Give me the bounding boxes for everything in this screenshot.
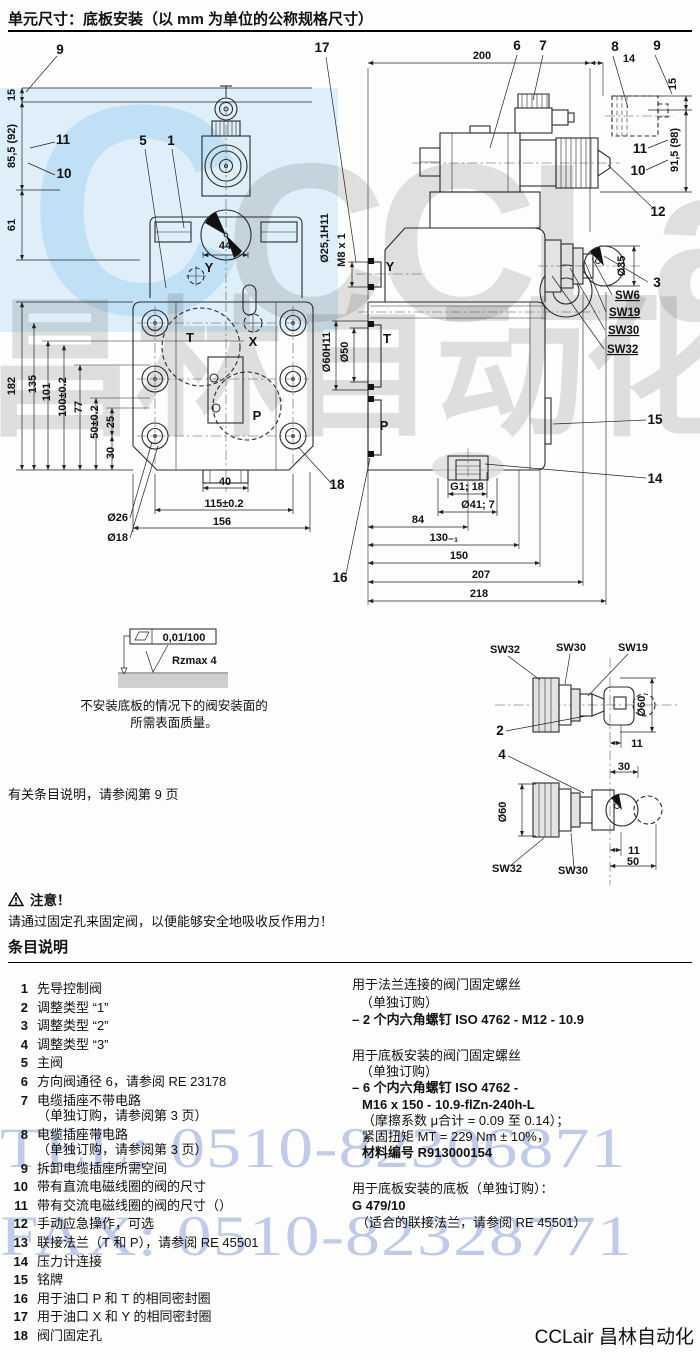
legend-item-number: 2	[8, 1000, 28, 1015]
legend-item-number: 7	[8, 1093, 28, 1124]
dim-label: 25	[105, 416, 117, 428]
dim-label: 44	[219, 240, 232, 252]
port-label: T	[186, 330, 194, 345]
legend-reference-note: 有关条目说明，请参阅第 9 页	[8, 784, 178, 803]
legend-item-number: 14	[8, 1254, 28, 1269]
legend-item: 10带有直流电磁线圈的阀的尺寸	[8, 1179, 348, 1194]
dim-label: 115±0.2	[204, 498, 243, 510]
note-label: 不安装底板的情况下的阀安装面的	[80, 698, 268, 713]
detail-views-geometry	[495, 658, 678, 885]
order-note-line: – 2 个内六角螺钉 ISO 4762 - M12 - 10.9	[352, 1011, 697, 1029]
dim-label: Ø60H11	[321, 332, 333, 372]
dim-label: 14	[623, 53, 636, 65]
dim-label: 61	[6, 219, 18, 231]
warning-row: 注意！	[8, 889, 71, 909]
dim-label: SW30	[556, 642, 586, 654]
dim-label: 15	[667, 78, 679, 90]
legend-item-text: 铭牌	[37, 1272, 63, 1287]
legend-item-text: 调整类型 “2”	[37, 1018, 109, 1033]
dim-label: 50	[627, 856, 639, 868]
legend-item: 16用于油口 P 和 T 的相同密封圈	[8, 1291, 348, 1306]
detail-views-dimensions	[506, 654, 656, 870]
order-note-line: （单独订购）	[352, 994, 697, 1012]
legend-item-text: 调整类型 “3”	[37, 1037, 109, 1052]
legend-item-number: 15	[8, 1272, 28, 1287]
warning-title: 注意！	[30, 889, 71, 909]
callout-label: 10	[56, 166, 71, 181]
legend-item-text: 先导控制阀	[37, 981, 102, 996]
legend-item-text: 电缆插座不带电路（单独订购，请参阅第 3 页）	[37, 1093, 207, 1124]
dim-label: 130₋₁	[430, 532, 459, 544]
callout-label: 9	[56, 42, 64, 57]
flange-screws-block: 用于法兰连接的阀门固定螺丝（单独订购）– 2 个内六角螺钉 ISO 4762 -…	[352, 976, 697, 1029]
legend-item-number: 16	[8, 1291, 28, 1306]
callout-label: 16	[332, 570, 348, 585]
brand-logo-text: CCLair 昌林自动化	[535, 1322, 694, 1349]
dim-label: Ø60	[497, 802, 509, 823]
callout-label: 15	[647, 412, 663, 427]
order-note-line: M16 x 150 - 10.9-flZn-240h-L	[352, 1097, 697, 1113]
order-note-line: – 6 个内六角螺钉 ISO 4762 -	[352, 1080, 697, 1096]
legend-item-text: 压力计连接	[37, 1254, 102, 1269]
dim-label: Ø26	[107, 512, 128, 524]
callout-label: 11	[56, 132, 71, 147]
legend-item-subtext: （单独订购，请参阅第 3 页）	[37, 1142, 207, 1157]
dim-label: 40	[219, 476, 231, 488]
legend-item: 2调整类型 “1”	[8, 1000, 348, 1015]
dim-label: G1; 18	[450, 481, 484, 493]
port-label: Y	[205, 260, 214, 275]
legend-item-text: 带有交流电磁线圈的阀的尺寸（）	[37, 1198, 232, 1213]
order-note-line: 用于法兰连接的阀门固定螺丝	[352, 976, 697, 994]
legend-item: 3调整类型 “2”	[8, 1018, 348, 1033]
legend-item: 11带有交流电磁线圈的阀的尺寸（）	[8, 1198, 348, 1213]
dim-label: 0,01/100	[163, 632, 206, 644]
legend-item-text: 带有直流电磁线圈的阀的尺寸	[37, 1179, 206, 1194]
dim-label: 200	[473, 50, 491, 62]
callout-label: 18	[329, 477, 345, 492]
legend-item-number: 8	[8, 1127, 28, 1158]
legend-item: 4调整类型 “3”	[8, 1037, 348, 1052]
legend-item: 14压力计连接	[8, 1254, 348, 1269]
note-label: 所需表面质量。	[130, 716, 218, 730]
order-note-line: 紧固扭矩 MT = 229 Nm ± 10%，	[352, 1129, 697, 1145]
callout-label: 6	[513, 38, 521, 53]
legend-item-text: 手动应急操作，可选	[37, 1216, 154, 1231]
dim-label: SW32	[490, 644, 520, 656]
legend-item-number: 9	[8, 1161, 28, 1176]
order-note-line: 用于底板安装的底板（单独订购）：	[352, 1180, 697, 1197]
legend-item-text: 阀门固定孔	[37, 1328, 102, 1343]
legend-item: 13联接法兰（T 和 P），请参阅 RE 45501	[8, 1235, 348, 1250]
dim-label: SW32	[492, 863, 522, 875]
dimension-drawing: 917111051181585,5 (92)61182135101100±0.2…	[0, 0, 700, 890]
callout-label: 5	[139, 133, 147, 148]
dim-label: M8 x 1	[336, 233, 348, 267]
dim-label: Ø60	[636, 696, 648, 717]
legend-item: 9拆卸电缆插座所需空间	[8, 1161, 348, 1176]
port-label: T	[383, 331, 391, 346]
legend-item: 15铭牌	[8, 1272, 348, 1287]
dim-label: SW19	[618, 642, 648, 654]
callout-label: 7	[539, 38, 547, 53]
dim-label: Ø41; 7	[461, 499, 495, 511]
front-view-geometry	[133, 86, 313, 492]
order-note-line: 用于底板安装的阀门固定螺丝	[352, 1048, 697, 1064]
dim-label: 207	[472, 569, 490, 581]
dim-label: 15	[6, 89, 18, 101]
legend-item: 6方向阀通径 6，请参阅 RE 23178	[8, 1074, 348, 1089]
dim-label: 156	[213, 516, 231, 528]
callout-label: 11	[633, 141, 648, 156]
callout-label: 2	[496, 723, 504, 738]
callout-label: 9	[653, 38, 661, 53]
wrench-size-label: SW19	[609, 307, 640, 319]
legend-item-number: 18	[8, 1328, 28, 1343]
dim-label: SW30	[558, 865, 588, 877]
legend-item-text: 主阀	[37, 1055, 63, 1070]
dim-label: 150	[450, 550, 468, 562]
dim-label: 135	[27, 375, 39, 393]
legend-item-number: 1	[8, 981, 28, 996]
dim-label: 218	[470, 588, 488, 600]
legend-item-number: 13	[8, 1235, 28, 1250]
callout-label: 14	[647, 471, 663, 486]
legend-item-text: 拆卸电缆插座所需空间	[37, 1161, 167, 1176]
legend-item-text: 调整类型 “1”	[37, 1000, 109, 1015]
order-note-line: （适合的联接法兰，请参阅 RE 45501）	[352, 1214, 697, 1231]
subplate-order-block: 用于底板安装的底板（单独订购）：G 479/10（适合的联接法兰，请参阅 RE …	[352, 1180, 697, 1231]
dim-label: Ø50	[339, 342, 351, 363]
dim-label: 11	[631, 738, 643, 750]
order-note-line: 材料编号 R913000154	[352, 1145, 697, 1161]
warning-text: 请通过固定孔来固定阀，以便能够安全地吸收反作用力！	[8, 911, 333, 930]
dim-label: 182	[6, 377, 18, 395]
dim-label: Ø25,1H11	[319, 213, 331, 263]
dim-label: 85,5 (92)	[6, 124, 18, 168]
callout-label: 12	[650, 204, 665, 219]
legend-item-number: 3	[8, 1018, 28, 1033]
wrench-size-label: SW30	[608, 325, 639, 337]
dim-label: 30	[105, 447, 117, 459]
legend-item-text: 方向阀通径 6，请参阅 RE 23178	[37, 1074, 226, 1089]
callout-label: 17	[314, 40, 329, 55]
dim-label: 91,5 (98)	[669, 128, 681, 172]
legend-heading: 条目说明	[8, 936, 68, 957]
callout-label: 4	[498, 747, 506, 762]
legend-item-number: 10	[8, 1179, 28, 1194]
legend-item-list: 1先导控制阀2调整类型 “1”3调整类型 “2”4调整类型 “3”5主阀6方向阀…	[8, 981, 348, 1347]
port-label: X	[249, 334, 258, 349]
legend-item-number: 11	[8, 1198, 28, 1213]
legend-item: 1先导控制阀	[8, 981, 348, 996]
order-note-line: G 479/10	[352, 1197, 697, 1214]
callout-label: 3	[653, 275, 661, 290]
legend-item-number: 17	[8, 1309, 28, 1324]
legend-item-number: 12	[8, 1216, 28, 1231]
legend-item: 8电缆插座带电路（单独订购，请参阅第 3 页）	[8, 1127, 348, 1158]
legend-item-number: 4	[8, 1037, 28, 1052]
dim-label: Ø35	[616, 256, 628, 277]
port-label: Y	[386, 259, 395, 274]
warning-icon	[8, 892, 24, 907]
port-label: P	[380, 418, 389, 433]
dim-label: 84	[412, 514, 425, 526]
port-label: P	[253, 408, 262, 423]
legend-item-text: 联接法兰（T 和 P），请参阅 RE 45501	[37, 1235, 259, 1250]
legend-item-subtext: （单独订购，请参阅第 3 页）	[37, 1108, 207, 1123]
legend-item: 17用于油口 X 和 Y 的相同密封圈	[8, 1309, 348, 1324]
legend-item-text: 电缆插座带电路（单独订购，请参阅第 3 页）	[37, 1127, 207, 1158]
callout-label: 10	[630, 163, 645, 178]
drawing-labels: 917111051181585,5 (92)61182135101100±0.2…	[6, 38, 681, 877]
legend-item: 7电缆插座不带电路（单独订购，请参阅第 3 页）	[8, 1093, 348, 1124]
legend-item: 5主阀	[8, 1055, 348, 1070]
dim-label: Rzmax 4	[172, 655, 218, 667]
legend-underline	[8, 962, 692, 963]
dim-label: Ø18	[107, 532, 128, 544]
legend-item-text: 用于油口 X 和 Y 的相同密封圈	[37, 1309, 212, 1324]
wrench-size-label: SW32	[607, 344, 638, 356]
legend-item-number: 6	[8, 1074, 28, 1089]
legend-item-text: 用于油口 P 和 T 的相同密封圈	[37, 1291, 211, 1306]
order-note-line: （摩擦系数 μ合计 = 0.09 至 0.14）；	[352, 1113, 697, 1129]
legend-item: 12手动应急操作，可选	[8, 1216, 348, 1231]
order-note-line: （单独订购）	[352, 1064, 697, 1080]
dim-label: 30	[618, 761, 630, 773]
legend-item-number: 5	[8, 1055, 28, 1070]
legend-item: 18阀门固定孔	[8, 1328, 348, 1343]
dim-label: 101	[41, 383, 53, 401]
subplate-screws-block: 用于底板安装的阀门固定螺丝（单独订购）– 6 个内六角螺钉 ISO 4762 -…	[352, 1048, 697, 1161]
dim-label: 100±0.2	[57, 377, 69, 417]
callout-label: 1	[167, 133, 175, 148]
callout-label: 8	[611, 39, 619, 54]
wrench-size-label: SW6	[615, 290, 640, 302]
dim-label: 77	[73, 401, 85, 413]
front-view-dimensions	[16, 56, 356, 538]
dim-label: 50±0.2	[89, 405, 101, 439]
